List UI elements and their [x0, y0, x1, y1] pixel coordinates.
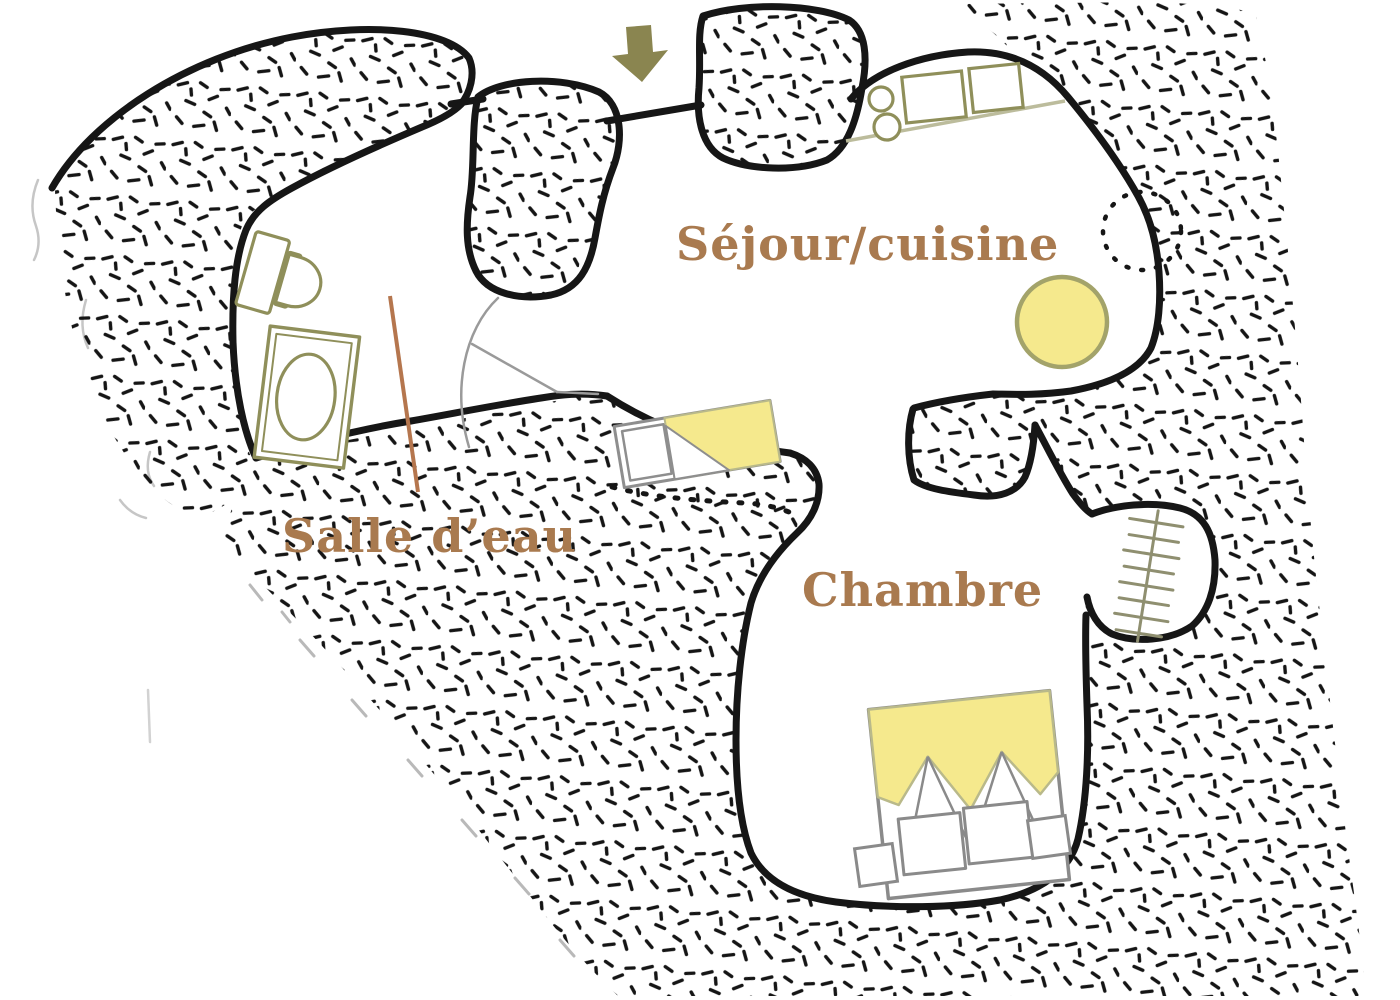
pillow [622, 424, 672, 480]
washing-machine-icon [254, 326, 359, 468]
kitchen-sink-icon [902, 71, 966, 123]
rock-t-peninsula [906, 394, 1036, 496]
floor-plan-drawing: Séjour/cuisine Salle d’eau Chambre [0, 0, 1400, 1000]
label-chambre: Chambre [802, 563, 1043, 617]
nightstand-icon [855, 844, 898, 887]
floor-plan-page: Séjour/cuisine Salle d’eau Chambre [0, 0, 1400, 1000]
kitchen-appliance-icon [969, 64, 1023, 113]
label-sejour-cuisine: Séjour/cuisine [676, 217, 1059, 271]
round-table-icon [1017, 277, 1107, 367]
entrance-arrow-icon [612, 25, 668, 82]
double-bed-icon [869, 691, 1070, 899]
kitchen-hob-icon [869, 87, 893, 111]
pillow [963, 802, 1033, 864]
label-salle-deau: Salle d’eau [282, 509, 577, 563]
kitchen-hob-icon [874, 114, 900, 140]
pillow [898, 813, 966, 875]
rock-entry-middle [698, 7, 865, 168]
nightstand-icon [1028, 816, 1071, 859]
